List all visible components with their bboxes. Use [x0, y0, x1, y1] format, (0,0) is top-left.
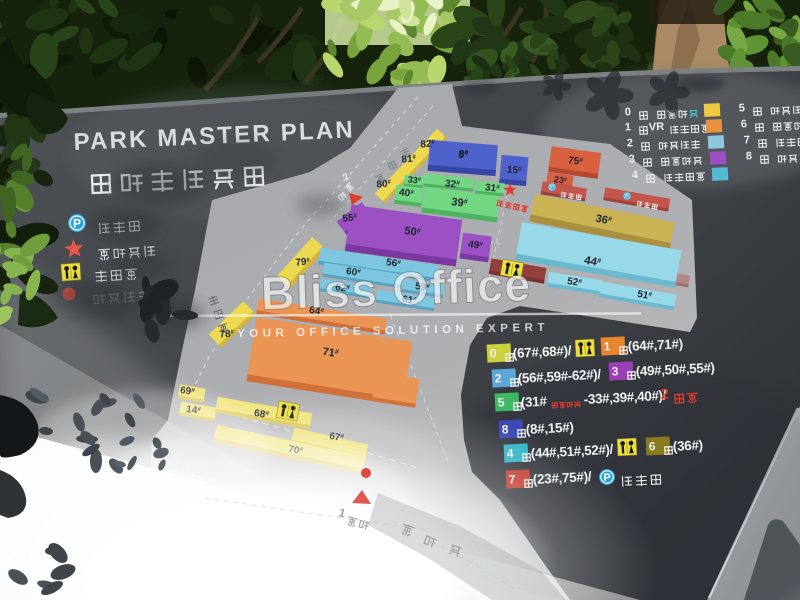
svg-text:P: P: [73, 217, 81, 231]
svg-text:3: 3: [611, 364, 619, 378]
svg-text:1: 1: [603, 339, 611, 353]
svg-text:6: 6: [648, 439, 656, 453]
svg-text:6: 6: [741, 118, 748, 130]
svg-text:3: 3: [629, 153, 636, 165]
svg-text:0: 0: [625, 106, 632, 118]
svg-text:7: 7: [744, 134, 751, 146]
svg-text:5: 5: [497, 395, 505, 409]
svg-text:(64#,71#): (64#,71#): [627, 336, 683, 354]
svg-text:(67#,68#)/: (67#,68#)/: [512, 343, 572, 361]
svg-text:5: 5: [739, 102, 746, 114]
svg-text:2: 2: [660, 387, 669, 403]
svg-text:(31#: (31#: [520, 394, 547, 410]
svg-text:2: 2: [627, 137, 634, 149]
svg-text:VR: VR: [649, 121, 665, 134]
svg-text:0: 0: [489, 346, 497, 360]
svg-text:Bliss Office: Bliss Office: [260, 257, 532, 319]
svg-text:1: 1: [625, 121, 632, 133]
svg-text:8: 8: [746, 150, 753, 162]
svg-text:(36#): (36#): [672, 437, 703, 454]
svg-text:2: 2: [494, 371, 502, 385]
